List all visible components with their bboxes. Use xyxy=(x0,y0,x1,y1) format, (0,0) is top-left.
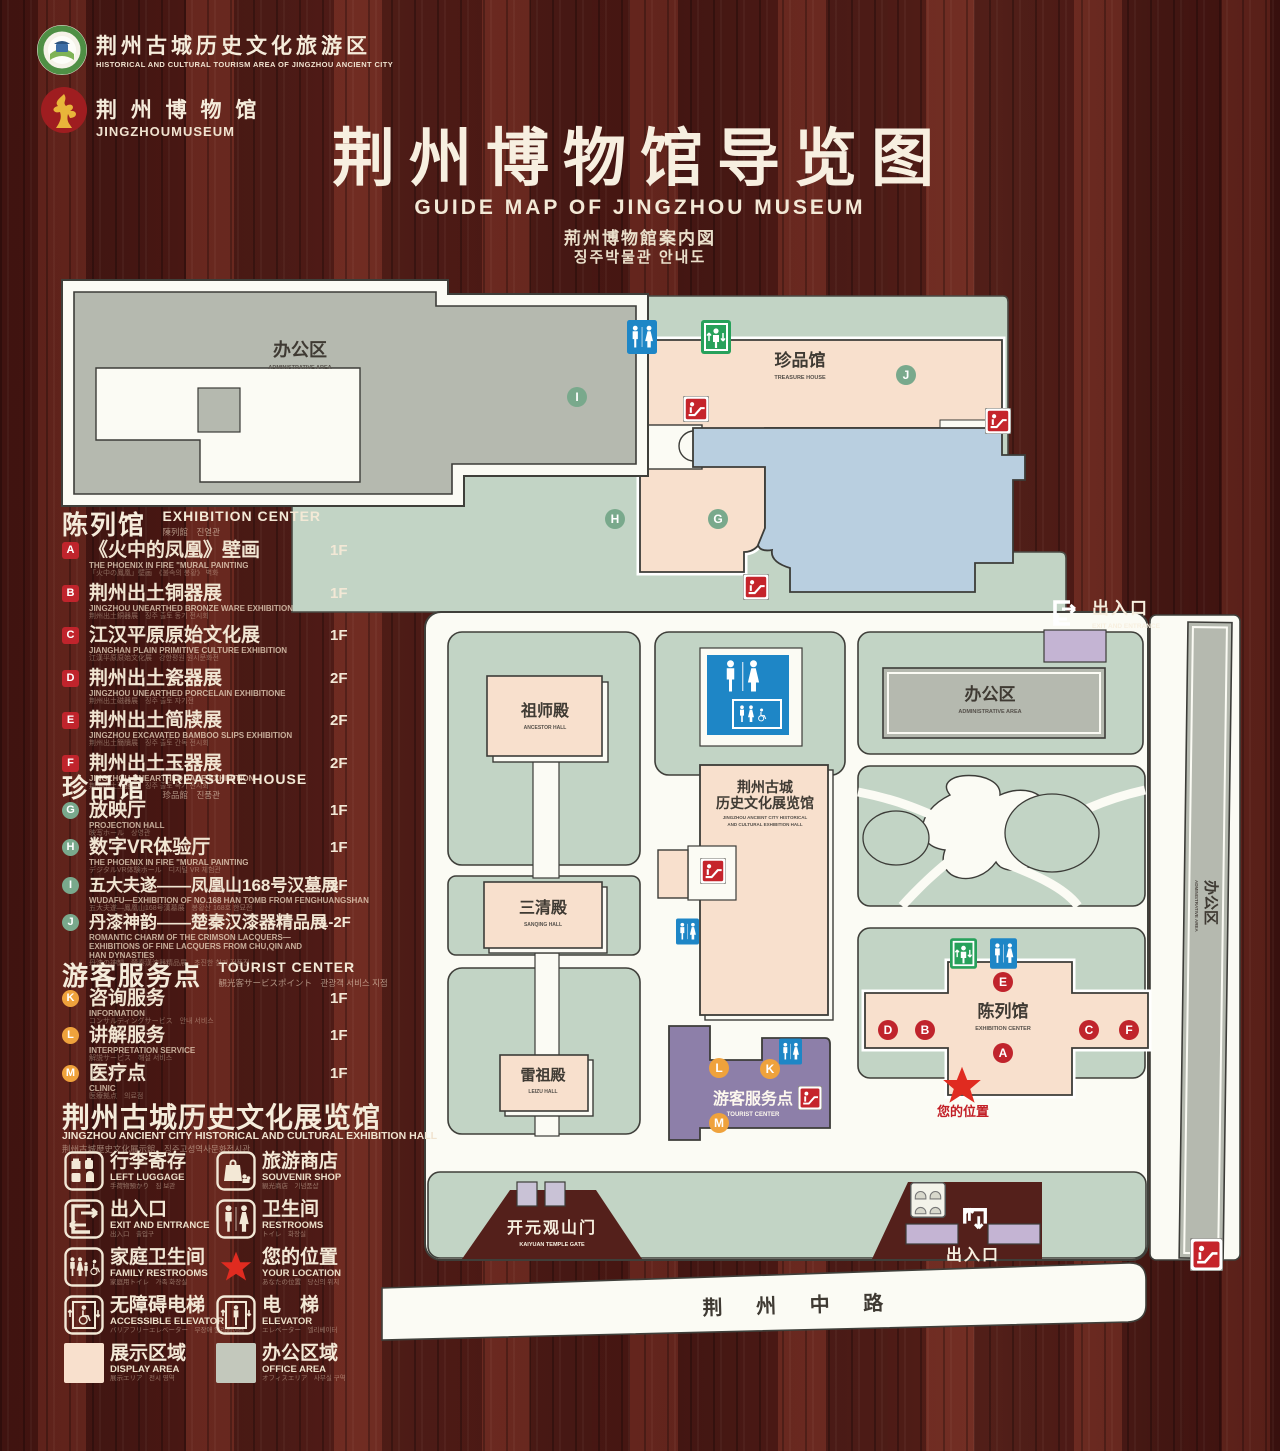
treasure-house-label: 珍品馆 xyxy=(775,350,826,370)
garden xyxy=(858,766,1145,906)
svg-text:I: I xyxy=(575,390,578,404)
floor-tag: 1F xyxy=(330,839,348,856)
entrance-gate-building xyxy=(1044,630,1106,662)
svg-text:K: K xyxy=(766,1062,775,1076)
section-title-en: TREASURE HOUSE xyxy=(162,771,307,787)
accessible-elevator-icon xyxy=(64,1295,104,1335)
badge-d: D xyxy=(62,670,79,687)
exhibition-center-label-en: EXHIBITION CENTER xyxy=(975,1026,1031,1032)
svg-text:C: C xyxy=(1085,1023,1094,1037)
restroom-icon xyxy=(216,1199,256,1239)
legend-icon-restrooms: 卫生间 RESTROOMS トイレ 화장실 xyxy=(216,1199,256,1244)
admin-strip-label: 办公区 xyxy=(1202,880,1220,925)
legend-icon-elevator: 电 梯 ELEVATOR エレベーター 엘리베이터 xyxy=(216,1295,256,1340)
luggage-icon xyxy=(64,1151,104,1191)
floor-tag: 1F xyxy=(330,585,348,602)
floor-tag: 2F xyxy=(330,670,348,687)
floor-tag: 1F xyxy=(330,542,348,559)
ancestor-hall-label-en: ANCESTOR HALL xyxy=(524,725,567,731)
restroom-icon xyxy=(990,938,1017,969)
sanqing-hall-label-en: SANQING HALL xyxy=(524,922,562,928)
admin-strip-east: 办公区 ADMINISTRATIVE AREA xyxy=(1150,615,1240,1260)
jingzhou-middle-road: 荆 州 中 路 xyxy=(382,1263,1146,1340)
hall-title-en: JINGZHOU ANCIENT CITY HISTORICAL AND CUL… xyxy=(62,1130,437,1142)
section-title-sub: 珍品館 진품관 xyxy=(162,789,307,801)
escalator-icon xyxy=(743,574,769,600)
treasure-house-label-en: TREASURE HOUSE xyxy=(774,375,826,381)
legend-icon-souvenir-shop: 旅游商店 SOUVENIR SHOP 観光商店 기념품샵 xyxy=(216,1151,256,1196)
leizu-hall-label: 雷祖殿 xyxy=(520,1066,566,1084)
admin-strip-label-en: ADMINISTRATIVE AREA xyxy=(1194,880,1199,933)
your-location-label: 您的位置 xyxy=(937,1104,989,1119)
floor-tag: 2F xyxy=(330,877,348,894)
hall-label-en1: JINGZHOU ANCIENT CITY HISTORICAL xyxy=(723,815,808,820)
northeast-exit-label: 出入口 xyxy=(1092,598,1149,618)
legend-section-exhibition-header: 陈列馆 EXHIBITION CENTER 陳列館 진열관 xyxy=(62,505,321,542)
elevator-icon xyxy=(701,320,731,354)
restroom-icon xyxy=(676,918,699,944)
svg-text:E: E xyxy=(999,975,1007,989)
badge-j: J xyxy=(62,914,79,931)
section-title: 陈列馆 xyxy=(62,505,146,542)
floor-tag: 1F xyxy=(330,990,348,1007)
office-area-swatch xyxy=(216,1343,256,1383)
legend-swatch-display-area: 展示区域 DISPLAY AREA 展示エリア 전시 영역 xyxy=(64,1343,104,1388)
escalator-icon xyxy=(700,858,726,884)
exhibition-center-label: 陈列馆 xyxy=(978,1001,1029,1021)
svg-text:L: L xyxy=(715,1061,722,1075)
badge-h: H xyxy=(62,839,79,856)
turnstile-icon xyxy=(911,1183,946,1218)
floor-tag: 2F xyxy=(330,712,348,729)
section-title-en: EXHIBITION CENTER xyxy=(162,508,321,524)
south-exit-label: 出入口 xyxy=(946,1245,1000,1264)
floor-tag: 1F xyxy=(330,1065,348,1082)
sanqing-hall-label: 三清殿 xyxy=(519,899,568,917)
hall-label-2: 历史文化展览馆 xyxy=(716,795,814,811)
badge-l: L xyxy=(62,1027,79,1044)
floor-tag: 1-2F xyxy=(320,914,351,931)
badge-k: K xyxy=(62,990,79,1007)
admin-right-label-en: ADMINISTRATIVE AREA xyxy=(958,709,1021,715)
restroom-main-icon xyxy=(707,655,789,735)
svg-text:J: J xyxy=(903,368,910,382)
floor-tag: 1F xyxy=(330,627,348,644)
restroom-icon xyxy=(779,1038,802,1064)
family-restroom-icon xyxy=(64,1247,104,1287)
escalator-icon xyxy=(1190,1238,1223,1271)
hall-label-en2: AND CULTURAL EXHIBITION HALL xyxy=(727,822,803,827)
badge-a: A xyxy=(62,542,79,559)
legend-icon-your-location: 您的位置 YOUR LOCATION あなたの位置 당신의 위치 xyxy=(216,1247,256,1292)
legend-panel: 陈列馆 EXHIBITION CENTER 陳列館 진열관 A 《火中的凤凰》壁… xyxy=(62,0,422,1451)
legend-icon-accessible-elevator: 无障碍电梯 ACCESSIBLE ELEVATOR バリアフリーエレベーター 무… xyxy=(64,1295,104,1340)
legend-swatch-office-area: 办公区域 OFFICE AREA オフィスエリア 사무실 구역 xyxy=(216,1343,256,1388)
kaiyuan-gate-label-en: KAIYUAN TEMPLE GATE xyxy=(519,1242,585,1248)
svg-text:B: B xyxy=(921,1023,930,1037)
floor-tag: 2F xyxy=(330,755,348,772)
temple-axis: 祖师殿 ANCESTOR HALL 三清殿 SANQING HALL 雷祖殿 L… xyxy=(448,632,640,1136)
legend-icon-family-restrooms: 家庭卫生间 FAMILY RESTROOMS 家庭用トイレ 가족 화장실 xyxy=(64,1247,104,1292)
center-court xyxy=(655,632,845,775)
svg-text:D: D xyxy=(884,1023,893,1037)
badge-e: E xyxy=(62,712,79,729)
escalator-icon xyxy=(985,408,1011,434)
elevator-icon xyxy=(216,1295,256,1335)
badge-g: G xyxy=(62,802,79,819)
admin-right-label: 办公区 xyxy=(965,684,1016,704)
tourist-center-label: 游客服务点 xyxy=(713,1089,793,1108)
section-title-en: TOURIST CENTER xyxy=(218,959,387,975)
svg-text:F: F xyxy=(1125,1023,1132,1037)
tourist-center-label-en: TOURIST CENTER xyxy=(727,1112,780,1118)
restroom-icon xyxy=(627,320,657,354)
badge-c: C xyxy=(62,627,79,644)
section-title-sub: 陳列館 진열관 xyxy=(162,526,321,538)
escalator-icon xyxy=(683,396,709,422)
svg-text:H: H xyxy=(611,512,620,526)
section-title-sub: 観光客サービスポイント 관광객 서비스 지점 xyxy=(218,977,387,989)
legend-icon-exit-entrance: 出入口 EXIT AND ENTRANCE 出入口 출입구 xyxy=(64,1199,104,1244)
shopping-bag-icon xyxy=(216,1151,256,1191)
escalator-icon xyxy=(798,1086,822,1110)
location-star-icon xyxy=(216,1247,256,1287)
floor-tag: 1F xyxy=(330,1027,348,1044)
ancestor-hall-label: 祖师殿 xyxy=(520,701,570,720)
exit-entrance-icon xyxy=(64,1199,104,1239)
legend-icon-left-luggage: 行李寄存 LEFT LUGGAGE 手荷物預かり 짐 보관 xyxy=(64,1151,104,1196)
hall-label-1: 荆州古城 xyxy=(737,779,793,795)
svg-text:A: A xyxy=(999,1046,1008,1060)
elevator-icon xyxy=(950,938,977,969)
northeast-exit-label-en: EXIT AND ENTRANCE xyxy=(1092,623,1161,630)
badge-m: M xyxy=(62,1065,79,1082)
svg-text:M: M xyxy=(714,1116,724,1130)
svg-text:G: G xyxy=(713,512,722,526)
badge-b: B xyxy=(62,585,79,602)
display-area-swatch xyxy=(64,1343,104,1383)
kaiyuan-gate-label: 开元观山门 xyxy=(507,1218,597,1237)
floor-tag: 1F xyxy=(330,802,348,819)
badge-i: I xyxy=(62,877,79,894)
leizu-hall-label-en: LEIZU HALL xyxy=(528,1089,557,1095)
